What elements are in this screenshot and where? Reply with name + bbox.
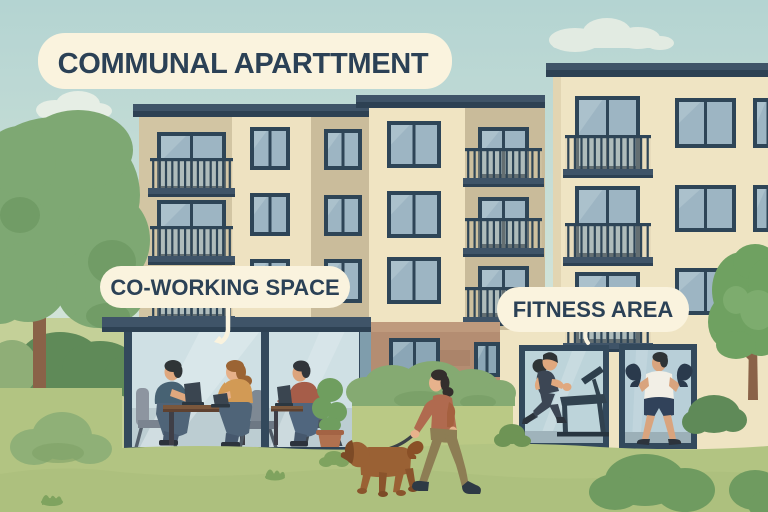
svg-text:CO-WORKING SPACE: CO-WORKING SPACE	[110, 275, 339, 300]
svg-text:FITNESS AREA: FITNESS AREA	[513, 297, 674, 322]
svg-text:COMMUNAL APARTTMENT: COMMUNAL APARTTMENT	[58, 48, 429, 80]
